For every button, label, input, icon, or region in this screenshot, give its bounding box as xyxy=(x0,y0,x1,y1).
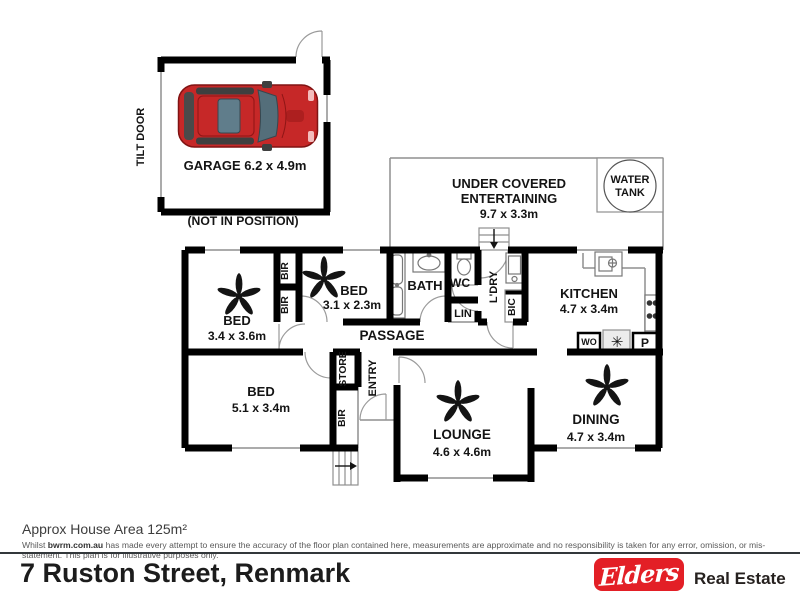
entertaining-label-2: ENTERTAINING xyxy=(461,191,558,206)
floorplan-drawing: GARAGE 6.2 x 4.9m TILT DOOR (NOT IN POSI… xyxy=(0,0,800,515)
bir-label-entry: BIR xyxy=(337,409,348,427)
entertaining-dims: 9.7 x 3.3m xyxy=(480,207,538,221)
page-title: 7 Ruston Street, Renmark xyxy=(20,558,350,589)
pantry-label: P xyxy=(641,336,649,350)
kitchen-dims: 4.7 x 3.4m xyxy=(560,302,618,316)
ceiling-fan-icon xyxy=(217,273,262,316)
floorplan-page: GARAGE 6.2 x 4.9m TILT DOOR (NOT IN POSI… xyxy=(0,0,800,600)
ceiling-fan-icon xyxy=(436,380,481,423)
tilt-door-label: TILT DOOR xyxy=(135,108,147,167)
bath-label: BATH xyxy=(407,278,442,293)
ceiling-fan-icon xyxy=(585,364,630,407)
lounge-dims: 4.6 x 4.6m xyxy=(433,445,491,459)
bic-label: BIC xyxy=(507,298,518,316)
store-label: STORE xyxy=(338,351,349,386)
toilet-icon xyxy=(457,252,471,275)
bed3-label: BED xyxy=(247,384,274,399)
kitchen-label: KITCHEN xyxy=(560,286,618,301)
bir-label-top: BIR xyxy=(280,262,291,280)
laundry-door-swing xyxy=(487,322,513,348)
kitchen-sink-icon xyxy=(595,252,622,276)
entry-label: ENTRY xyxy=(367,359,379,397)
bath-door-swing xyxy=(420,296,446,322)
bed3-dims: 5.1 x 3.4m xyxy=(232,401,290,415)
footer-divider xyxy=(0,552,800,554)
garage-door-swing xyxy=(296,31,322,57)
brand-suffix: Real Estate xyxy=(694,569,786,589)
ldry-label: L'DRY xyxy=(488,270,500,303)
basin-icon xyxy=(413,252,445,272)
bed1-door-swing xyxy=(279,324,305,350)
wall-oven-label: WO xyxy=(581,337,597,347)
disclaimer-prefix: Whilst xyxy=(22,540,48,550)
door-swings xyxy=(279,31,513,420)
not-in-position-label: (NOT IN POSITION) xyxy=(187,214,298,228)
red-car-icon xyxy=(179,81,318,151)
elders-logo: Elders xyxy=(594,558,684,591)
lin-label: LIN xyxy=(454,308,472,320)
lounge-door-swing xyxy=(399,357,425,383)
disclaimer-rest: has made every attempt to ensure the acc… xyxy=(22,540,765,560)
bed1-label: BED xyxy=(223,313,250,328)
wc-label: WC xyxy=(450,276,471,290)
bed2-dims: 3.1 x 2.3m xyxy=(323,298,381,312)
bed3-door-swing xyxy=(305,352,331,378)
entertaining-label-1: UNDER COVERED xyxy=(452,176,566,191)
dining-dims: 4.7 x 3.4m xyxy=(567,430,625,444)
water-tank-label-2: TANK xyxy=(615,187,645,199)
dining-label: DINING xyxy=(572,412,619,427)
entertaining-steps-icon xyxy=(479,228,509,250)
approx-house-area: Approx House Area 125m² xyxy=(22,521,187,537)
bir-label-bottom: BIR xyxy=(280,296,291,314)
bed2-label: BED xyxy=(340,283,367,298)
elders-logo-text: Elders xyxy=(599,560,679,590)
dishwasher-icon: ✳ xyxy=(611,334,624,351)
garage-label: GARAGE 6.2 x 4.9m xyxy=(184,158,307,173)
disclaimer-site: bwrm.com.au xyxy=(48,540,103,550)
passage-label: PASSAGE xyxy=(359,328,424,343)
front-steps-icon xyxy=(333,448,358,485)
laundry-trough-icon xyxy=(506,253,523,283)
water-tank-label-1: WATER xyxy=(611,174,650,186)
front-door-swing xyxy=(360,394,386,420)
lounge-label: LOUNGE xyxy=(433,427,491,442)
bed1-dims: 3.4 x 3.6m xyxy=(208,329,266,343)
